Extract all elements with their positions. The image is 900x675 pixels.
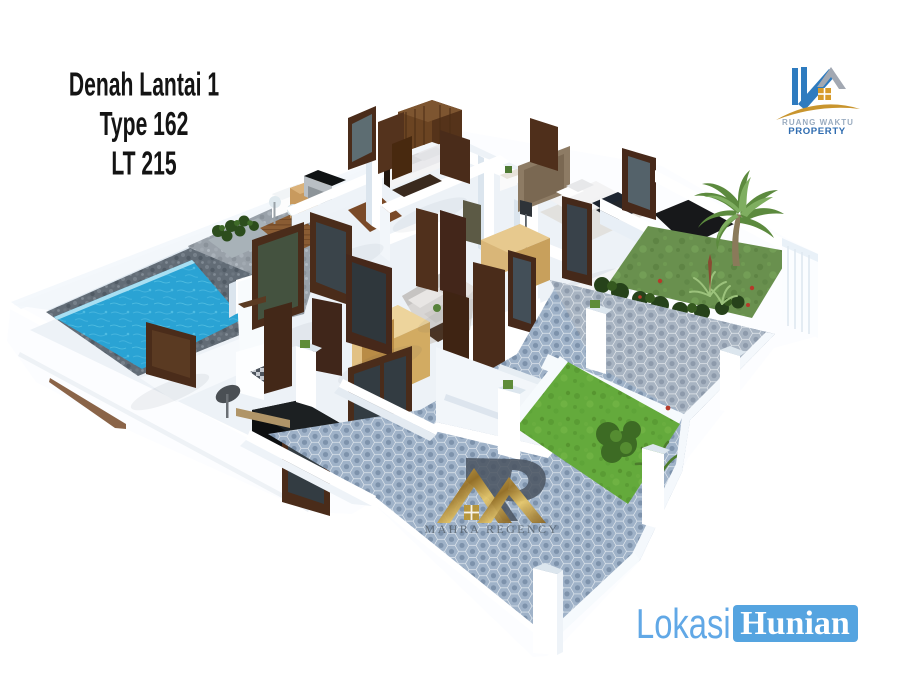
svg-text:PROPERTY: PROPERTY (788, 126, 846, 137)
svg-text:Type 162: Type 162 (100, 105, 189, 142)
svg-text:Lokasi: Lokasi (636, 600, 731, 647)
svg-text:MAHRA REGENCY: MAHRA REGENCY (425, 522, 560, 536)
svg-text:Hunian: Hunian (740, 605, 850, 642)
svg-text:LT 215: LT 215 (111, 145, 176, 182)
svg-text:Denah Lantai 1: Denah Lantai 1 (69, 66, 219, 103)
